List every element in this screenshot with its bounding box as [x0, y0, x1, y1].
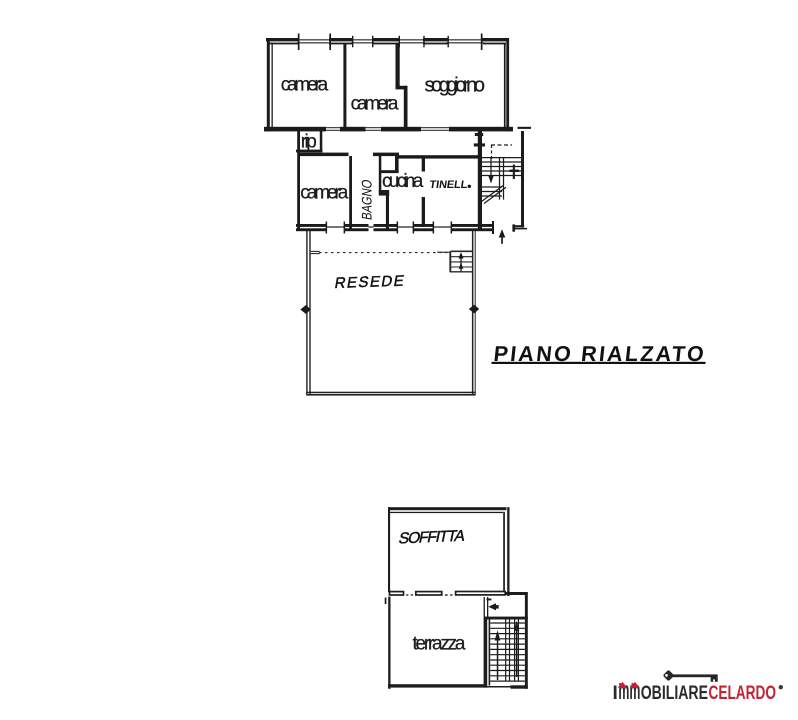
- svg-text:TINELL: TINELL: [429, 179, 469, 191]
- svg-text:camera: camera: [351, 94, 399, 115]
- svg-text:CELARDO: CELARDO: [709, 683, 777, 704]
- svg-text:RESEDE: RESEDE: [333, 273, 405, 292]
- svg-text:SOFFITTA: SOFFITTA: [397, 528, 467, 548]
- svg-text:I: I: [613, 683, 618, 704]
- svg-text:mm: mm: [618, 677, 640, 705]
- svg-text:rip: rip: [301, 132, 317, 153]
- svg-text:OBILIARE: OBILIARE: [641, 683, 708, 704]
- svg-text:camera: camera: [300, 183, 348, 204]
- svg-text:BAGNO: BAGNO: [359, 178, 375, 221]
- svg-text:soggiorno: soggiorno: [425, 75, 486, 97]
- svg-text:terrazza: terrazza: [413, 634, 466, 655]
- svg-text:cucina: cucina: [382, 171, 424, 192]
- svg-text:camera: camera: [281, 74, 329, 95]
